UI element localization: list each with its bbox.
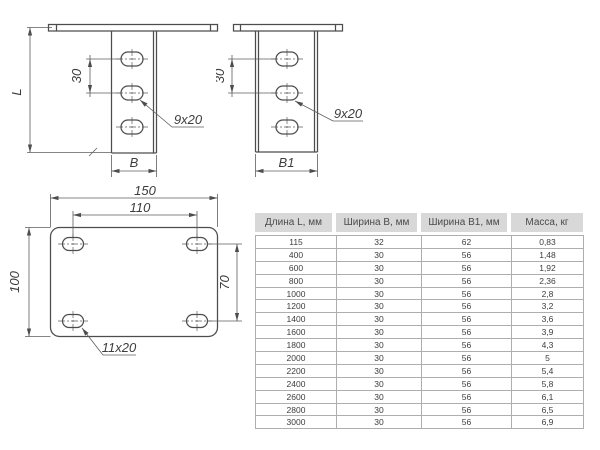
slot-callout-11x20: 11x20 [82, 328, 137, 355]
table-cell: 1800 [256, 339, 337, 352]
front-view-drawing: 30 B1 9x20 [216, 0, 376, 200]
table-row: 120030563,2 [256, 300, 584, 313]
table-row: 100030562,8 [256, 287, 584, 300]
table-row: 300030566,9 [256, 416, 584, 429]
table-cell: 56 [422, 403, 512, 416]
table-cell: 3,9 [512, 326, 584, 339]
side-view-drawing: L 30 B 9x20 [0, 0, 240, 200]
table-cell: 2000 [256, 352, 337, 365]
table-cell: 62 [422, 236, 512, 249]
table-cell: 30 [337, 313, 422, 326]
table-cell: 1600 [256, 326, 337, 339]
dim-label-L: L [9, 88, 24, 95]
table-row: 60030561,92 [256, 261, 584, 274]
table-cell: 5,8 [512, 377, 584, 390]
table-row: 200030565 [256, 352, 584, 365]
table-cell: 5 [512, 352, 584, 365]
table-cell: 600 [256, 261, 337, 274]
dim-label-70: 70 [217, 275, 232, 290]
table-cell: 56 [422, 377, 512, 390]
table-cell: 2600 [256, 390, 337, 403]
table-cell: 56 [422, 287, 512, 300]
table-cell: 56 [422, 390, 512, 403]
plan-view-drawing: 150 110 100 70 11 [0, 180, 260, 450]
table-cell: 56 [422, 274, 512, 287]
slot-callout-label: 11x20 [102, 340, 137, 355]
table-cell: 56 [422, 364, 512, 377]
table-cell: 3,2 [512, 300, 584, 313]
table-row: 180030564,3 [256, 339, 584, 352]
slot-hole [182, 311, 212, 331]
table-cell: 4,3 [512, 339, 584, 352]
table-cell: 1000 [256, 287, 337, 300]
dimension-L: L [9, 28, 111, 157]
slot-callout-9x20: 9x20 [140, 100, 204, 127]
table-cell: 5,4 [512, 364, 584, 377]
dim-label-30: 30 [69, 68, 84, 83]
table-cell: 30 [337, 248, 422, 261]
table-header-row: Длина L, мм Ширина B, мм Ширина B1, мм М… [255, 213, 583, 232]
table-cell: 30 [337, 364, 422, 377]
table-cell: 30 [337, 274, 422, 287]
dimension-100: 100 [7, 228, 51, 337]
table-cell: 30 [337, 339, 422, 352]
table-cell: 56 [422, 326, 512, 339]
table-cell: 2200 [256, 364, 337, 377]
dimension-30: 30 [69, 55, 120, 97]
spec-table-grid: 11532620,8340030561,4860030561,928003056… [255, 235, 584, 429]
slot-hole [116, 49, 148, 69]
table-cell: 6,9 [512, 416, 584, 429]
table-cell: 30 [337, 377, 422, 390]
dim-label-B: B [130, 155, 139, 170]
table-cell: 30 [337, 326, 422, 339]
dim-label-B1: B1 [279, 155, 295, 170]
table-cell: 2,36 [512, 274, 584, 287]
dimension-30: 30 [216, 55, 275, 97]
table-row: 11532620,83 [256, 236, 584, 249]
table-cell: 2400 [256, 377, 337, 390]
specification-table: Длина L, мм Ширина B, мм Ширина B1, мм М… [255, 213, 583, 429]
table-cell: 3,6 [512, 313, 584, 326]
table-cell: 0,83 [512, 236, 584, 249]
table-cell: 1200 [256, 300, 337, 313]
slot-hole [58, 311, 88, 331]
table-cell: 56 [422, 352, 512, 365]
slot-hole [271, 49, 303, 69]
table-cell: 2800 [256, 403, 337, 416]
dim-label-30: 30 [216, 68, 227, 83]
slot-hole [116, 117, 148, 137]
slot-callout-label: 9x20 [334, 106, 363, 121]
table-cell: 6,5 [512, 403, 584, 416]
table-cell: 56 [422, 300, 512, 313]
slot-callout-label: 9x20 [174, 112, 203, 127]
table-cell: 115 [256, 236, 337, 249]
table-cell: 56 [422, 248, 512, 261]
table-cell: 6,1 [512, 390, 584, 403]
table-cell: 30 [337, 416, 422, 429]
dim-label-150: 150 [134, 183, 156, 198]
table-cell: 30 [337, 403, 422, 416]
table-cell: 1,92 [512, 261, 584, 274]
table-cell: 56 [422, 339, 512, 352]
slot-hole [271, 83, 303, 103]
dimension-70: 70 [208, 244, 242, 321]
table-cell: 30 [337, 390, 422, 403]
dimension-B: B [112, 155, 157, 177]
spec-table-body: 11532620,8340030561,4860030561,928003056… [256, 236, 584, 429]
table-row: 160030563,9 [256, 326, 584, 339]
table-cell: 56 [422, 313, 512, 326]
dimension-B1: B1 [256, 154, 318, 177]
table-cell: 30 [337, 352, 422, 365]
table-cell: 30 [337, 287, 422, 300]
table-cell: 56 [422, 416, 512, 429]
technical-drawing-sheet: L 30 B 9x20 [0, 0, 600, 450]
table-cell: 1,48 [512, 248, 584, 261]
table-row: 80030562,36 [256, 274, 584, 287]
table-cell: 30 [337, 300, 422, 313]
slot-hole [116, 83, 148, 103]
table-row: 240030565,8 [256, 377, 584, 390]
column-header-mass: Масса, кг [511, 213, 583, 232]
column-header-width-b: Ширина B, мм [336, 213, 417, 232]
slot-hole [271, 117, 303, 137]
table-row: 40030561,48 [256, 248, 584, 261]
table-cell: 56 [422, 261, 512, 274]
slot-callout-9x20: 9x20 [295, 101, 363, 121]
bracket-front-outline [234, 25, 343, 153]
table-cell: 800 [256, 274, 337, 287]
table-row: 280030566,5 [256, 403, 584, 416]
table-row: 140030563,6 [256, 313, 584, 326]
table-cell: 32 [337, 236, 422, 249]
column-header-length: Длина L, мм [255, 213, 332, 232]
dimension-110: 110 [73, 200, 197, 237]
table-row: 220030565,4 [256, 364, 584, 377]
table-cell: 2,8 [512, 287, 584, 300]
column-header-width-b1: Ширина B1, мм [421, 213, 507, 232]
table-cell: 30 [337, 261, 422, 274]
table-cell: 3000 [256, 416, 337, 429]
table-cell: 400 [256, 248, 337, 261]
dim-label-100: 100 [7, 270, 22, 292]
table-row: 260030566,1 [256, 390, 584, 403]
table-cell: 1400 [256, 313, 337, 326]
dim-label-110: 110 [130, 200, 151, 215]
